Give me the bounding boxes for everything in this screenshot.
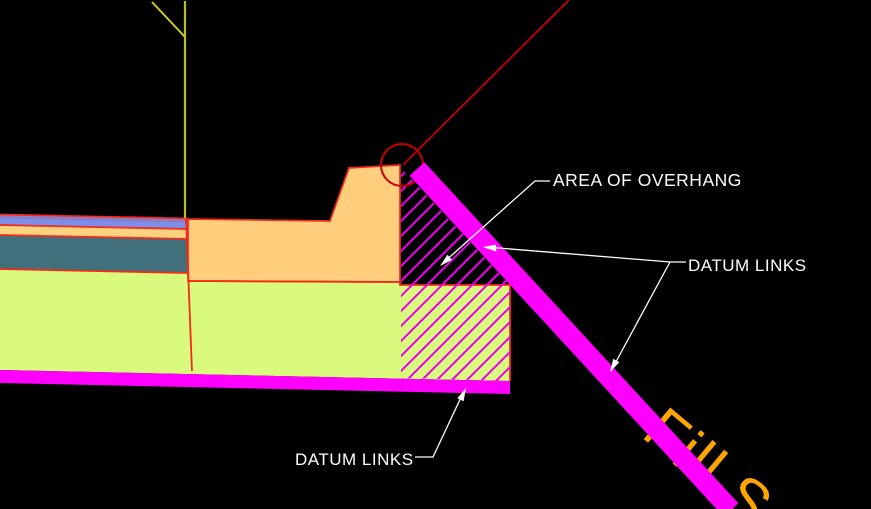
layer-teal	[0, 235, 188, 273]
label-area-of-overhang: AREA OF OVERHANG	[553, 170, 742, 190]
leader-datum-right-lower	[611, 262, 670, 371]
label-datum-links-right: DATUM LINKS	[688, 256, 807, 275]
leader-datum-right-upper	[486, 247, 686, 262]
yellow-lines	[152, 1, 185, 218]
ground-layers	[0, 215, 188, 273]
leader-datum-bottom	[415, 391, 464, 457]
red-projection-line	[403, 0, 569, 165]
cad-drawing: Fill S AREA OF OVERHANG DATUM LINKS DATU…	[0, 0, 871, 509]
label-datum-links-bottom: DATUM LINKS	[295, 450, 414, 469]
yellow-diagonal-line	[152, 2, 185, 37]
cad-viewport: Fill S AREA OF OVERHANG DATUM LINKS DATU…	[0, 0, 871, 509]
structure-orange	[188, 165, 400, 282]
